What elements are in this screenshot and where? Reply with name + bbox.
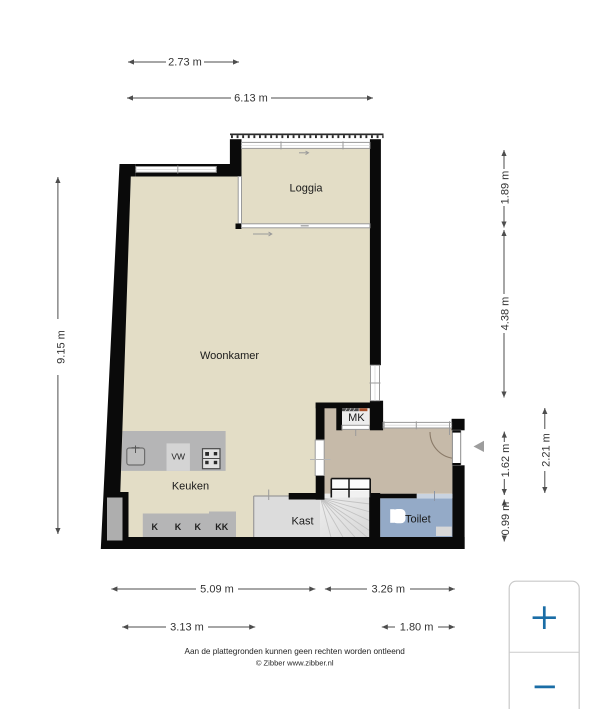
svg-text:4.38 m: 4.38 m bbox=[500, 297, 512, 331]
svg-text:MK: MK bbox=[348, 412, 365, 424]
svg-text:KK: KK bbox=[215, 522, 228, 532]
svg-text:9.15 m: 9.15 m bbox=[55, 330, 67, 364]
svg-text:VW: VW bbox=[171, 452, 185, 462]
svg-text:6.13 m: 6.13 m bbox=[234, 93, 268, 105]
svg-text:Toilet: Toilet bbox=[405, 514, 431, 526]
svg-text:Keuken: Keuken bbox=[172, 481, 209, 493]
svg-text:K: K bbox=[151, 522, 158, 532]
svg-text:3.13 m: 3.13 m bbox=[170, 622, 204, 634]
svg-text:© Zibber www.zibber.nl: © Zibber www.zibber.nl bbox=[256, 659, 334, 668]
svg-text:Loggia: Loggia bbox=[289, 183, 323, 195]
svg-text:2.21 m: 2.21 m bbox=[540, 433, 552, 467]
svg-text:0.99 m: 0.99 m bbox=[500, 502, 512, 536]
svg-text:2.73 m: 2.73 m bbox=[168, 57, 202, 69]
svg-text:1.89 m: 1.89 m bbox=[500, 171, 512, 205]
svg-text:3.26 m: 3.26 m bbox=[371, 584, 405, 596]
svg-text:K: K bbox=[175, 522, 182, 532]
svg-text:K: K bbox=[195, 522, 202, 532]
svg-text:1.80 m: 1.80 m bbox=[400, 622, 434, 634]
svg-text:5.09 m: 5.09 m bbox=[200, 584, 234, 596]
svg-text:Woonkamer: Woonkamer bbox=[200, 350, 259, 362]
svg-text:Kast: Kast bbox=[291, 516, 313, 528]
svg-text:1.62 m: 1.62 m bbox=[500, 444, 512, 478]
svg-text:Aan de plattegronden kunnen ge: Aan de plattegronden kunnen geen rechten… bbox=[185, 647, 406, 656]
